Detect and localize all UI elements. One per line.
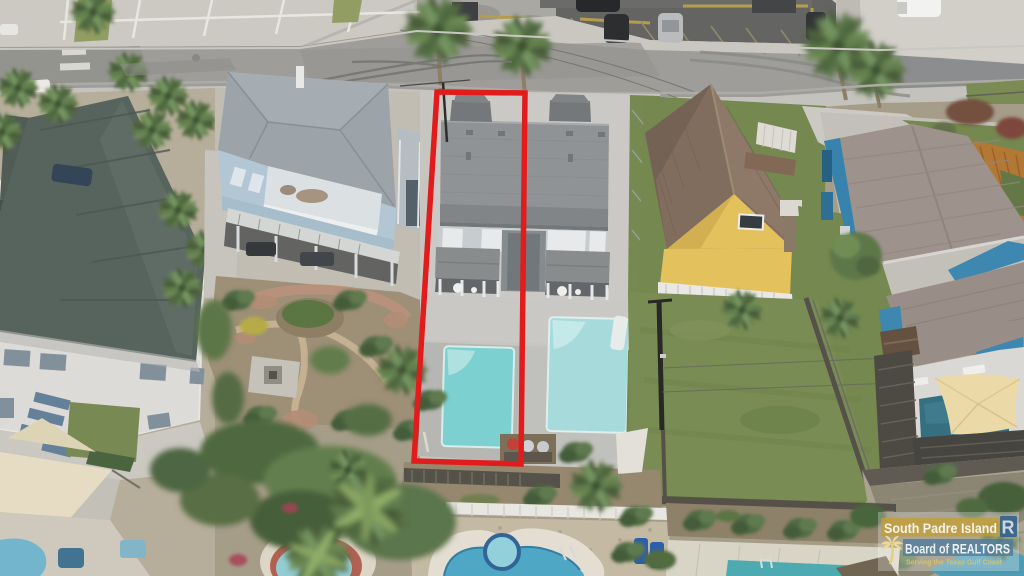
svg-text:Serving the Texas Gulf Coast: Serving the Texas Gulf Coast [906,560,1003,567]
svg-text:R: R [1002,518,1015,538]
svg-text:Board of REALTORS: Board of REALTORS [905,541,1010,557]
svg-text:South Padre Island: South Padre Island [884,521,997,537]
